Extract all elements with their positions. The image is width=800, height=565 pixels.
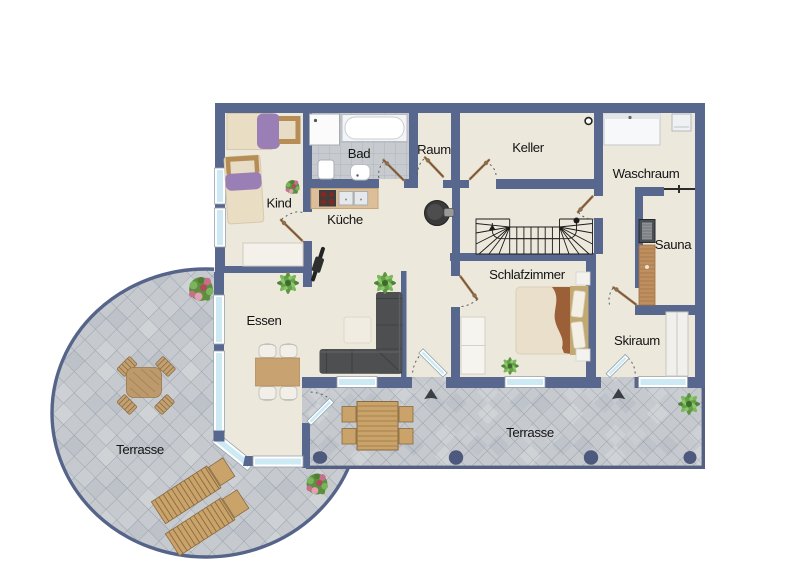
svg-text:Raum: Raum: [417, 142, 451, 157]
svg-text:Küche: Küche: [327, 212, 363, 227]
svg-text:Skiraum: Skiraum: [614, 333, 660, 348]
svg-text:Sauna: Sauna: [655, 237, 692, 252]
svg-text:Schlafzimmer: Schlafzimmer: [489, 267, 566, 282]
svg-text:Essen: Essen: [247, 313, 282, 328]
svg-text:Keller: Keller: [512, 140, 545, 155]
svg-text:Terrasse: Terrasse: [506, 425, 554, 440]
svg-text:Waschraum: Waschraum: [613, 166, 680, 181]
svg-text:Kind: Kind: [267, 196, 292, 211]
svg-text:Terrasse: Terrasse: [116, 442, 164, 457]
svg-text:Bad: Bad: [348, 146, 370, 161]
